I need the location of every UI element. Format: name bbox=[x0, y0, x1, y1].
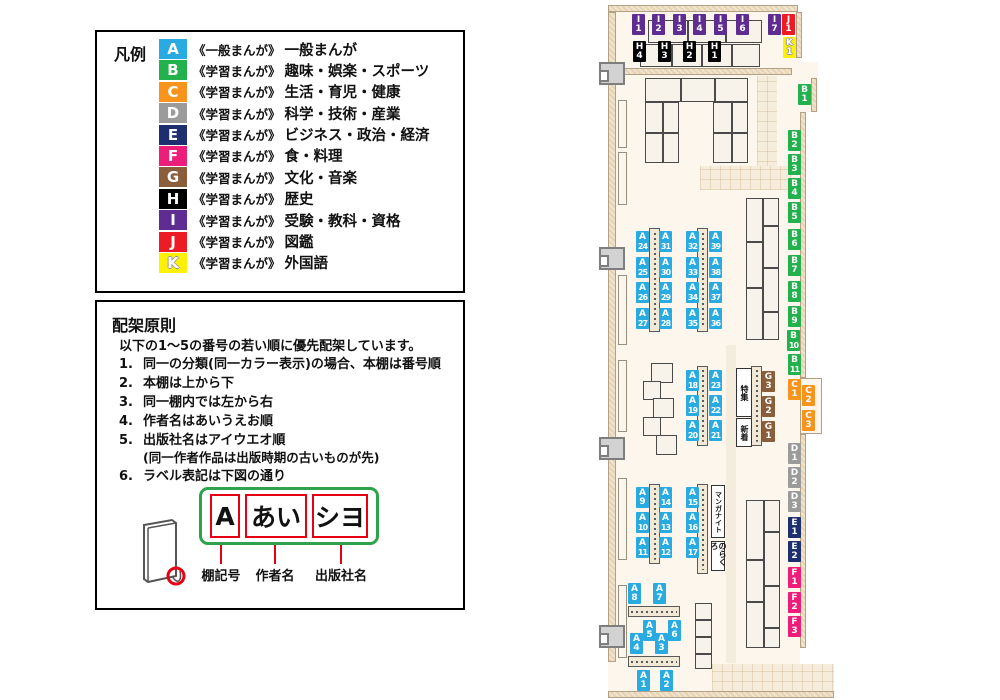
wall-shelf bbox=[618, 478, 627, 560]
shelf-label-F3: F3 bbox=[788, 616, 801, 637]
wall-left bbox=[608, 12, 616, 662]
shelf-label-I3: I3 bbox=[673, 14, 686, 35]
shelf-label-A29: A29 bbox=[659, 282, 672, 303]
shelf-block-u-top bbox=[645, 78, 748, 102]
shelf-label-C3: C3 bbox=[802, 410, 815, 431]
door bbox=[599, 62, 625, 85]
shelf-label-A34: A34 bbox=[686, 282, 699, 303]
shelf-label-G2: G2 bbox=[762, 396, 775, 417]
shelf-label-A17: A17 bbox=[686, 537, 699, 558]
walkway-mid bbox=[700, 166, 792, 190]
floor-map: I1I2I3I4I5I6I7J1K1H4H3H2H1B1B2B3B4B5B6B7… bbox=[0, 0, 1000, 700]
shelf-label-I1: I1 bbox=[632, 14, 645, 35]
shelf-box bbox=[695, 620, 712, 637]
shelf-label-A35: A35 bbox=[686, 308, 699, 329]
shelf-label-I5: I5 bbox=[714, 14, 727, 35]
shelf-label-B11: B11 bbox=[788, 354, 801, 375]
shelf-label-A23: A23 bbox=[709, 370, 722, 391]
shelf-label-A38: A38 bbox=[709, 257, 722, 278]
shelf-label-B8: B8 bbox=[788, 281, 801, 302]
shelf-label-A21: A21 bbox=[709, 420, 722, 441]
shelf-label-A19: A19 bbox=[686, 395, 699, 416]
wall-shelf bbox=[618, 275, 627, 345]
sign-norakuro: のらくろ bbox=[711, 541, 725, 571]
shelf-box bbox=[651, 363, 673, 383]
shelf-label-C1: C1 bbox=[788, 379, 801, 400]
shelf-label-H3: H3 bbox=[658, 41, 671, 62]
shelf-label-A27: A27 bbox=[636, 308, 649, 329]
shelf-label-K1: K1 bbox=[783, 37, 796, 58]
sign-manga-night: マンガナイト bbox=[711, 485, 725, 538]
shelf-label-B7: B7 bbox=[788, 255, 801, 276]
shelf-label-A12: A12 bbox=[659, 537, 672, 558]
shelf-label-J1: J1 bbox=[782, 14, 795, 35]
wall-top-right bbox=[796, 12, 802, 58]
shelf-label-A28: A28 bbox=[659, 308, 672, 329]
shelf-label-A11: A11 bbox=[636, 537, 649, 558]
shelf-label-B1: B1 bbox=[798, 84, 811, 105]
door bbox=[599, 247, 625, 270]
shelf-label-A33: A33 bbox=[686, 257, 699, 278]
shelf-label-A32: A32 bbox=[686, 231, 699, 252]
shelf-label-H2: H2 bbox=[683, 41, 696, 62]
shelf-label-A39: A39 bbox=[709, 231, 722, 252]
shelf-label-A25: A25 bbox=[636, 257, 649, 278]
shelf-label-A15: A15 bbox=[686, 487, 699, 508]
shelf-label-I6: I6 bbox=[736, 14, 749, 35]
shelf-label-F2: F2 bbox=[788, 592, 801, 613]
wall-top bbox=[608, 5, 798, 12]
shelf-box bbox=[695, 637, 712, 654]
walkway-bottom bbox=[712, 664, 834, 692]
shelf-box bbox=[695, 603, 712, 620]
wall-shelf bbox=[618, 100, 627, 148]
shelf-label-A20: A20 bbox=[686, 420, 699, 441]
shelf-label-D2: D2 bbox=[788, 467, 801, 488]
shelf-label-B5: B5 bbox=[788, 202, 801, 223]
shelf-strip bbox=[751, 366, 762, 446]
shelf-label-I2: I2 bbox=[652, 14, 665, 35]
shelf-label-A9: A9 bbox=[636, 487, 649, 508]
shelf-label-B4: B4 bbox=[788, 178, 801, 199]
shelf-label-G3: G3 bbox=[762, 371, 775, 392]
shelf-box bbox=[643, 417, 661, 436]
shelf-label-H4: H4 bbox=[633, 41, 646, 62]
shelf-label-A16: A16 bbox=[686, 512, 699, 533]
shelf-label-B3: B3 bbox=[788, 154, 801, 175]
shelf-label-F1: F1 bbox=[788, 567, 801, 588]
shelf-label-A22: A22 bbox=[709, 395, 722, 416]
wall-shelf bbox=[618, 360, 627, 432]
shelf-strip-h-row bbox=[622, 68, 792, 75]
door bbox=[599, 625, 625, 648]
shelf-label-B6: B6 bbox=[788, 229, 801, 250]
walkway-top bbox=[757, 76, 777, 172]
shelf-label-I7: I7 bbox=[768, 14, 781, 35]
shelf-label-D1: D1 bbox=[788, 443, 801, 464]
shelf-label-I4: I4 bbox=[693, 14, 706, 35]
shelf-label-C2: C2 bbox=[802, 385, 815, 406]
shelf-block-right-2 bbox=[746, 500, 780, 648]
shelf-label-A26: A26 bbox=[636, 282, 649, 303]
shelf-box bbox=[695, 654, 712, 669]
wall-shelf bbox=[618, 152, 627, 205]
shelf-label-A6: A6 bbox=[668, 620, 681, 641]
shelf-label-A13: A13 bbox=[659, 512, 672, 533]
shelf-label-A7: A7 bbox=[653, 583, 666, 604]
shelf-label-D3: D3 bbox=[788, 491, 801, 512]
shelf-label-A30: A30 bbox=[659, 257, 672, 278]
shelf-label-A14: A14 bbox=[659, 487, 672, 508]
shelf-box bbox=[653, 398, 674, 418]
shelf-label-A31: A31 bbox=[659, 231, 672, 252]
shelf-label-H1: H1 bbox=[708, 41, 721, 62]
shelf-label-B10: B10 bbox=[787, 330, 800, 351]
shelf-label-E1: E1 bbox=[788, 517, 801, 538]
shelf-label-A3: A3 bbox=[655, 633, 668, 654]
shelf-box bbox=[656, 435, 677, 455]
shelf-block-u-left bbox=[645, 102, 679, 163]
aisle-band bbox=[726, 345, 736, 663]
wall-b1-shelf bbox=[811, 78, 817, 112]
shelf-label-A36: A36 bbox=[709, 308, 722, 329]
shelf-block-right-1 bbox=[746, 198, 779, 340]
manga-floor-guide: 凡例 A《一般まんが》一般まんがB《学習まんが》趣味・娯楽・スポーツC《学習まん… bbox=[0, 0, 1000, 700]
shelf-label-E2: E2 bbox=[788, 541, 801, 562]
shelf-label-A8: A8 bbox=[628, 583, 641, 604]
shelf-label-A2: A2 bbox=[660, 670, 673, 691]
shelf-label-B2: B2 bbox=[788, 130, 801, 151]
sign-shinchaku: 新着 bbox=[736, 418, 752, 447]
shelf-label-A1: A1 bbox=[637, 670, 650, 691]
shelf-block-u-right bbox=[713, 102, 748, 163]
sign-tokushu: 特集 bbox=[736, 368, 752, 417]
shelf-strip bbox=[628, 656, 680, 667]
shelf-label-B9: B9 bbox=[788, 306, 801, 327]
shelf-label-G1: G1 bbox=[762, 421, 775, 442]
shelf-label-A24: A24 bbox=[636, 231, 649, 252]
shelf-label-A4: A4 bbox=[630, 633, 643, 654]
wall-bottom bbox=[608, 691, 834, 698]
shelf-strip bbox=[628, 606, 680, 617]
shelf-label-A37: A37 bbox=[709, 282, 722, 303]
shelf-label-A10: A10 bbox=[636, 512, 649, 533]
door bbox=[599, 437, 625, 460]
shelf-label-A18: A18 bbox=[686, 370, 699, 391]
